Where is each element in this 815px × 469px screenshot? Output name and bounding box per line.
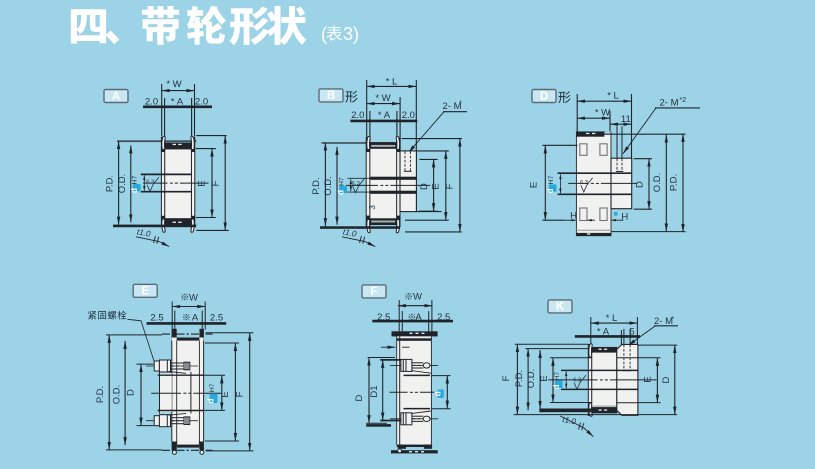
svg-text:2.0: 2.0 bbox=[402, 110, 415, 121]
svg-text:E: E bbox=[529, 182, 540, 188]
svg-text:D: D bbox=[354, 394, 365, 401]
svg-text:E: E bbox=[141, 286, 149, 298]
svg-text:D: D bbox=[419, 183, 430, 190]
svg-text:A: A bbox=[112, 91, 120, 103]
svg-text:* L: * L bbox=[386, 76, 398, 87]
svg-text:O.D.: O.D. bbox=[323, 176, 334, 196]
svg-text:W: W bbox=[189, 292, 198, 303]
svg-text:P.D.: P.D. bbox=[668, 174, 679, 191]
svg-text:W: W bbox=[413, 292, 422, 303]
svg-text:* L: * L bbox=[607, 90, 619, 101]
svg-text:3: 3 bbox=[367, 205, 377, 210]
svg-text:F: F bbox=[501, 375, 512, 381]
svg-text:*: * bbox=[671, 316, 674, 323]
svg-text:2- M: 2- M bbox=[660, 97, 679, 108]
svg-text:F: F bbox=[211, 180, 222, 186]
svg-text:d: d bbox=[336, 190, 345, 195]
svg-text:* W: * W bbox=[595, 107, 610, 118]
svg-text:D: D bbox=[635, 181, 646, 188]
svg-text:H7: H7 bbox=[548, 175, 555, 184]
svg-text:E: E bbox=[539, 375, 550, 381]
svg-text:F: F bbox=[235, 391, 246, 397]
svg-text:* W: * W bbox=[375, 93, 390, 104]
svg-text:d: d bbox=[130, 188, 139, 193]
svg-text:D: D bbox=[126, 389, 137, 396]
svg-text:P.D.: P.D. bbox=[95, 386, 106, 403]
svg-text:d: d bbox=[552, 385, 561, 390]
svg-text:2.5: 2.5 bbox=[210, 312, 223, 323]
svg-text:d: d bbox=[433, 391, 443, 396]
svg-text:11: 11 bbox=[621, 114, 631, 125]
svg-text:D1: D1 bbox=[369, 385, 380, 397]
svg-text:P.D.: P.D. bbox=[104, 175, 115, 192]
svg-text:A: A bbox=[192, 312, 199, 323]
svg-text:H7: H7 bbox=[209, 383, 216, 392]
svg-text:F: F bbox=[445, 183, 456, 189]
svg-text:B: B bbox=[327, 90, 335, 102]
svg-text:*: * bbox=[459, 101, 462, 108]
svg-text:E: E bbox=[197, 180, 208, 186]
svg-text:3): 3) bbox=[343, 24, 359, 44]
svg-text:P.D.: P.D. bbox=[311, 177, 322, 194]
svg-text:H: H bbox=[621, 212, 628, 223]
svg-text:H7: H7 bbox=[132, 175, 139, 184]
svg-text:O.D.: O.D. bbox=[526, 369, 537, 389]
svg-text:E: E bbox=[643, 376, 654, 382]
svg-text:F: F bbox=[370, 286, 377, 298]
svg-text:D: D bbox=[540, 91, 548, 103]
svg-text:O.D.: O.D. bbox=[652, 173, 663, 193]
svg-text:* L: * L bbox=[606, 313, 618, 324]
svg-text:d: d bbox=[546, 188, 555, 193]
svg-text:E: E bbox=[431, 183, 442, 189]
svg-text:H7: H7 bbox=[338, 177, 345, 186]
svg-text:O.D.: O.D. bbox=[117, 174, 128, 194]
svg-text:(: ( bbox=[321, 24, 327, 44]
svg-text:2.0: 2.0 bbox=[351, 110, 364, 121]
svg-text:K: K bbox=[556, 301, 565, 313]
svg-text:H7: H7 bbox=[554, 372, 561, 381]
svg-text:P.D.: P.D. bbox=[514, 370, 525, 387]
svg-text:2.5: 2.5 bbox=[150, 312, 163, 323]
svg-text:H: H bbox=[570, 210, 577, 221]
svg-text:O.D.: O.D. bbox=[111, 385, 122, 405]
svg-text:*2: *2 bbox=[680, 97, 687, 104]
svg-text:* A: * A bbox=[378, 110, 391, 121]
svg-text:d: d bbox=[207, 399, 216, 404]
svg-text:* W: * W bbox=[166, 79, 181, 90]
svg-text:D: D bbox=[661, 376, 672, 383]
